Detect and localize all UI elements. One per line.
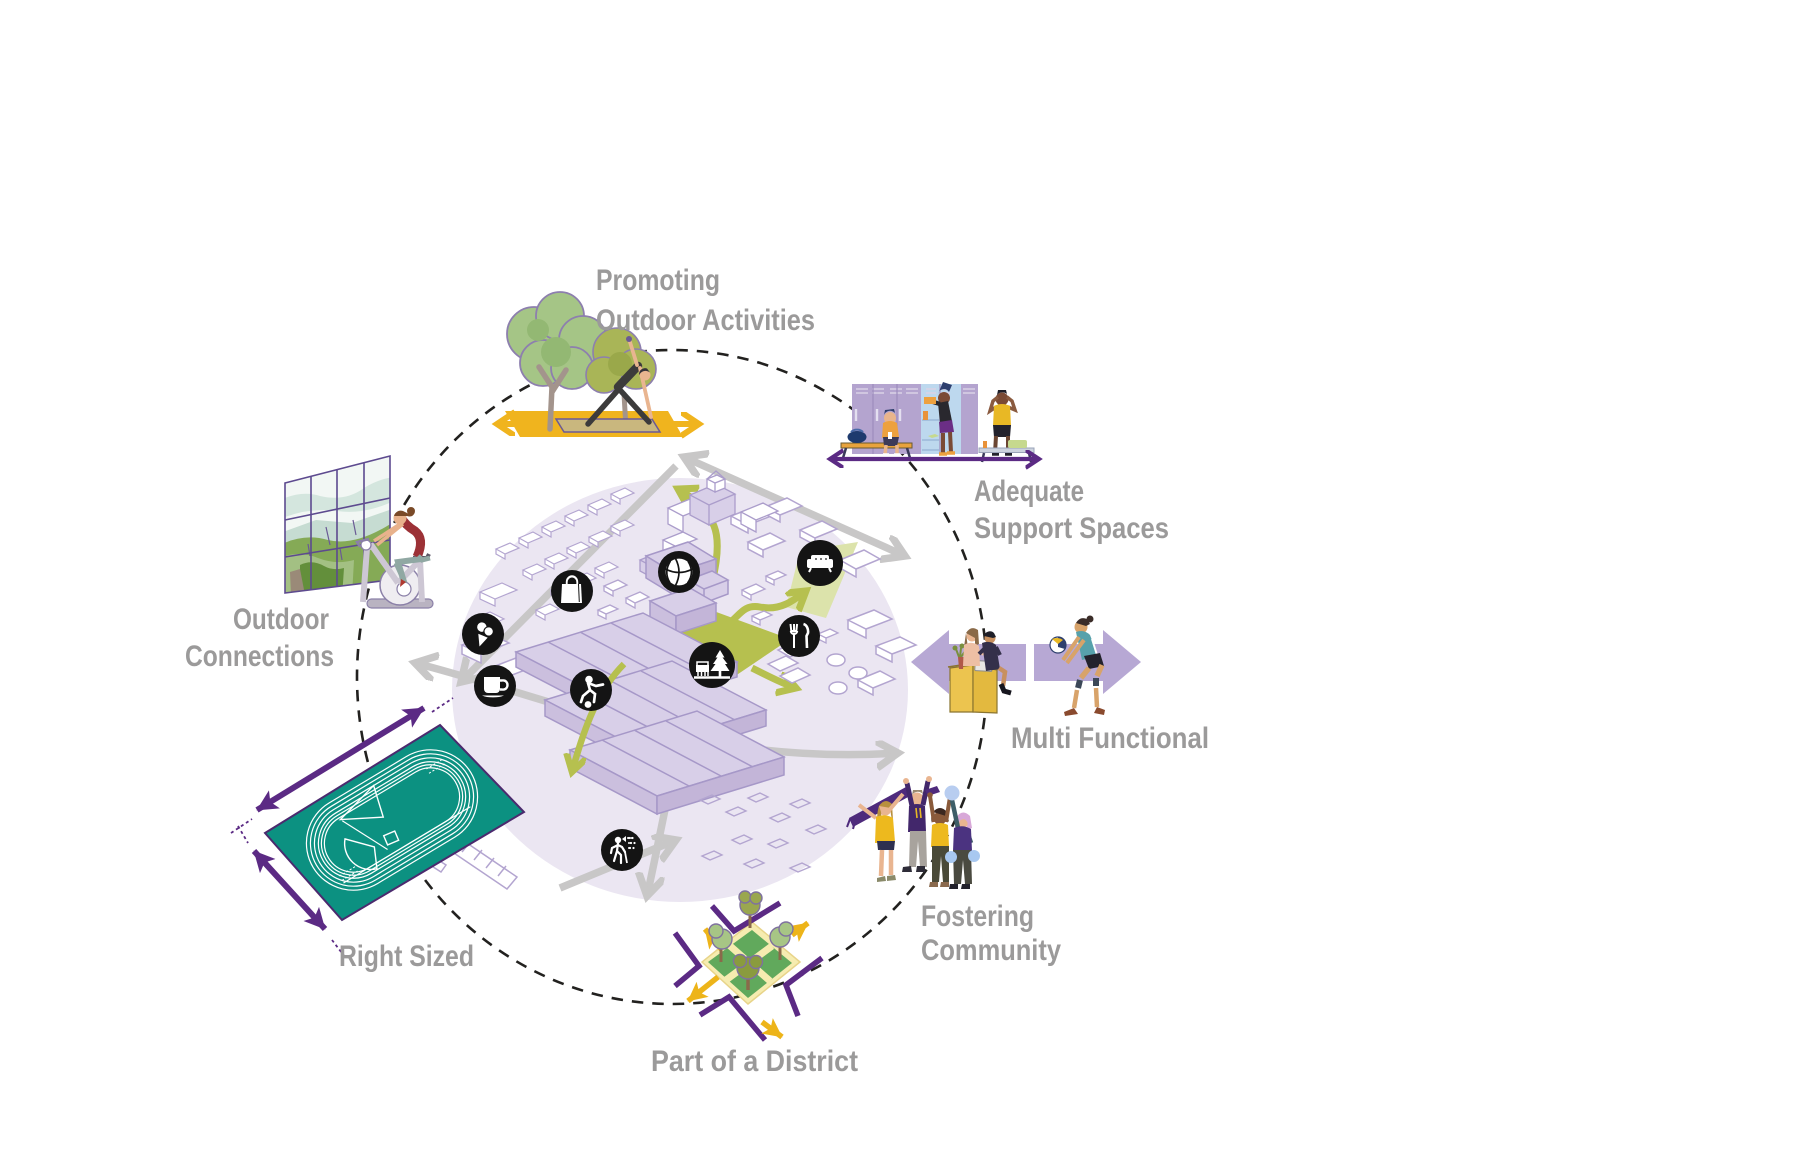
svg-text:Connections: Connections bbox=[185, 640, 334, 673]
svg-text:Outdoor Activities: Outdoor Activities bbox=[596, 304, 815, 337]
svg-text:Multi Functional: Multi Functional bbox=[1011, 722, 1209, 755]
svg-text:Right Sized: Right Sized bbox=[339, 940, 474, 973]
svg-text:Part of a District: Part of a District bbox=[651, 1045, 858, 1078]
svg-text:Outdoor: Outdoor bbox=[233, 603, 329, 636]
svg-text:Community: Community bbox=[921, 934, 1061, 967]
svg-text:Support Spaces: Support Spaces bbox=[974, 512, 1169, 545]
svg-text:Promoting: Promoting bbox=[596, 264, 720, 297]
svg-text:Fostering: Fostering bbox=[921, 900, 1034, 933]
svg-text:Adequate: Adequate bbox=[974, 475, 1084, 508]
